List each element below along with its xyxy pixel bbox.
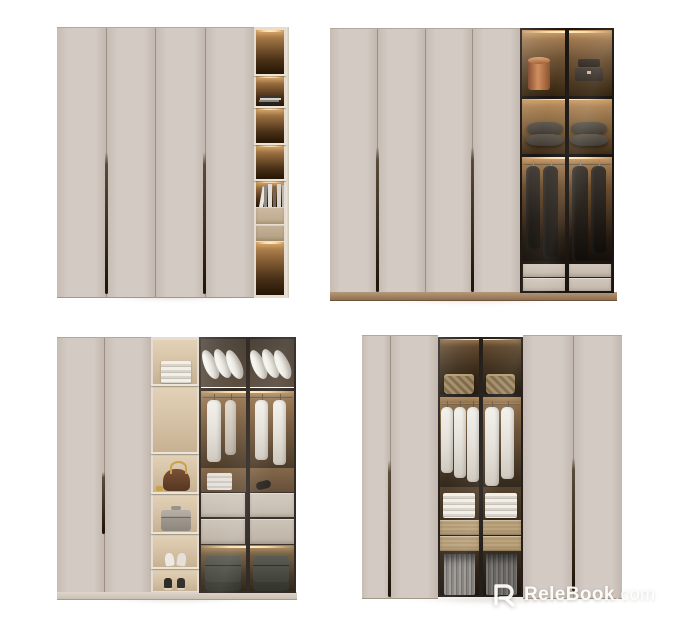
shelf-column — [254, 27, 286, 298]
compartment — [256, 242, 284, 295]
drawer — [256, 207, 284, 224]
compartment — [256, 108, 284, 143]
door-handle — [572, 458, 575, 591]
handbag — [163, 469, 190, 491]
shelf — [254, 143, 286, 145]
shelf — [151, 532, 199, 534]
shelf — [151, 567, 199, 569]
glass-reflection — [438, 337, 523, 597]
door-panel — [391, 336, 438, 598]
relebook-r-logo-icon — [492, 582, 518, 607]
compartment — [153, 494, 197, 532]
door-handle — [388, 460, 391, 597]
glass-display-section — [438, 337, 523, 597]
upright-books — [258, 183, 282, 207]
watermark-text: ReleBook.com — [524, 584, 655, 606]
door-bank — [57, 27, 254, 298]
drawer — [256, 225, 284, 241]
glass-reflection — [520, 28, 614, 293]
shelf — [151, 384, 199, 386]
compartment — [256, 181, 284, 207]
flat-book-stack — [259, 96, 281, 105]
door-handle — [471, 147, 474, 292]
gold-trinket — [156, 486, 163, 491]
glass-reflection — [199, 337, 296, 593]
shelf — [254, 179, 286, 181]
compartment — [256, 30, 284, 74]
side-panel — [286, 27, 289, 298]
glass-display-section — [520, 28, 614, 293]
compartment — [153, 386, 197, 452]
door-panel — [574, 336, 622, 598]
door-bank — [330, 28, 520, 293]
sneaker — [164, 578, 172, 590]
wardrobe-bottom-right — [362, 335, 622, 601]
door-panel — [107, 28, 157, 297]
shelf — [151, 492, 199, 494]
door-panel — [362, 336, 391, 598]
compartment — [153, 569, 197, 591]
plinth — [330, 292, 617, 301]
watermark-brand: ReleBook — [524, 584, 615, 605]
wardrobe-bottom-left — [57, 337, 297, 600]
compartment — [153, 454, 197, 492]
shelf — [151, 452, 199, 454]
door-bank — [362, 335, 438, 599]
door-panel — [206, 28, 255, 297]
door-handle — [105, 152, 108, 294]
shelf — [254, 106, 286, 108]
sneaker — [177, 578, 185, 590]
door-handle — [102, 472, 105, 534]
door-panel — [523, 336, 574, 598]
door-handle — [376, 147, 379, 292]
watermark: ReleBook.com — [492, 582, 655, 607]
shelf — [254, 74, 286, 76]
heel-shoe — [176, 553, 187, 567]
glass-display-section — [199, 337, 296, 593]
wardrobe-top-left — [57, 27, 289, 298]
door-panel — [57, 338, 105, 592]
door-panel — [378, 29, 426, 292]
door-handle — [203, 152, 206, 294]
vanity-case — [161, 510, 191, 531]
door-panel — [57, 28, 107, 297]
door-bank — [57, 337, 151, 593]
door-panel — [473, 29, 520, 292]
door-panel — [426, 29, 474, 292]
product-collage: ReleBook.com — [0, 0, 682, 640]
door-panel — [105, 338, 152, 592]
wardrobe-top-right — [330, 28, 617, 301]
door-panel — [156, 28, 206, 297]
compartment — [256, 76, 284, 106]
compartment — [153, 534, 197, 567]
compartment — [256, 145, 284, 179]
folded-clothes — [161, 361, 191, 383]
shelf-column — [151, 337, 199, 593]
door-panel — [330, 29, 378, 292]
base — [57, 592, 297, 600]
compartment — [153, 340, 197, 384]
heel-shoe — [164, 553, 175, 567]
watermark-suffix: .com — [615, 584, 656, 604]
